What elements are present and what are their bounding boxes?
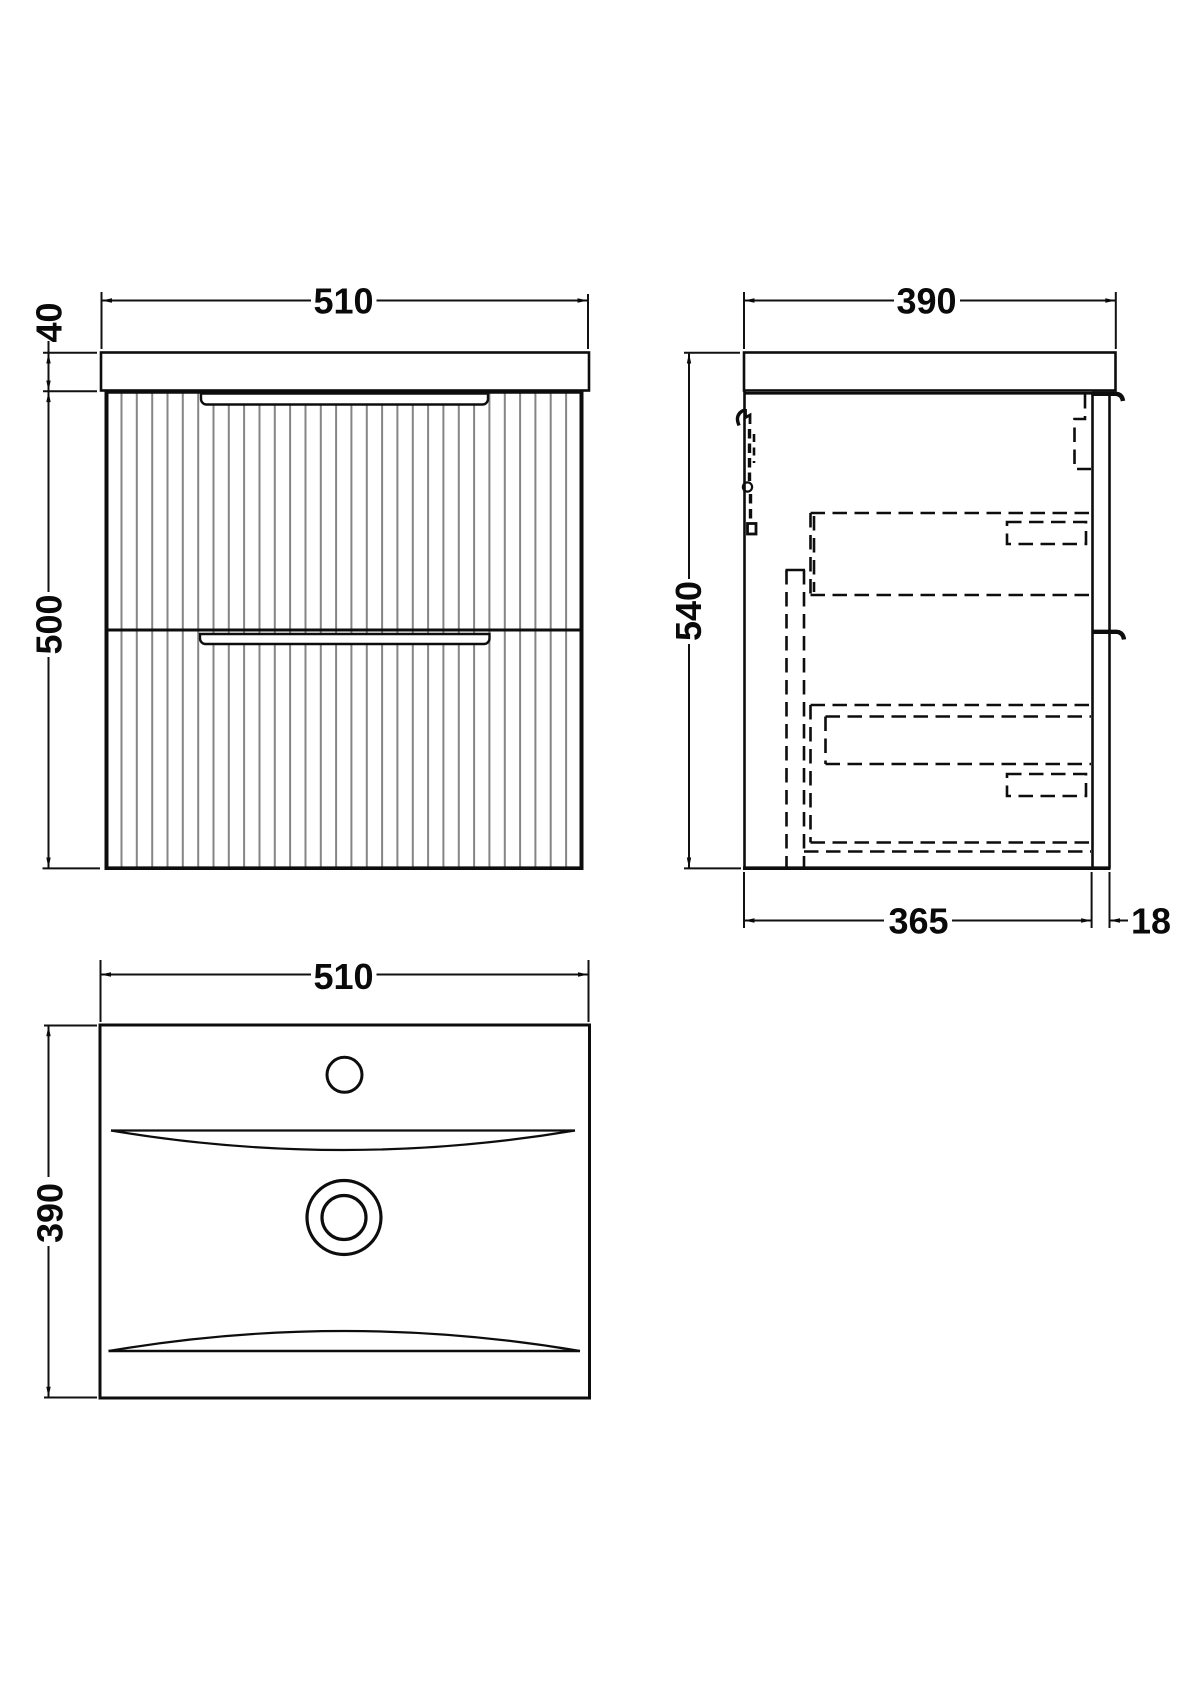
svg-text:40: 40 — [29, 302, 70, 342]
svg-text:365: 365 — [888, 901, 948, 942]
svg-text:18: 18 — [1131, 901, 1171, 942]
svg-text:540: 540 — [668, 581, 709, 641]
svg-text:510: 510 — [313, 281, 373, 322]
svg-text:500: 500 — [29, 594, 70, 654]
svg-text:510: 510 — [313, 956, 373, 997]
svg-text:390: 390 — [896, 281, 956, 322]
svg-text:390: 390 — [30, 1183, 71, 1243]
